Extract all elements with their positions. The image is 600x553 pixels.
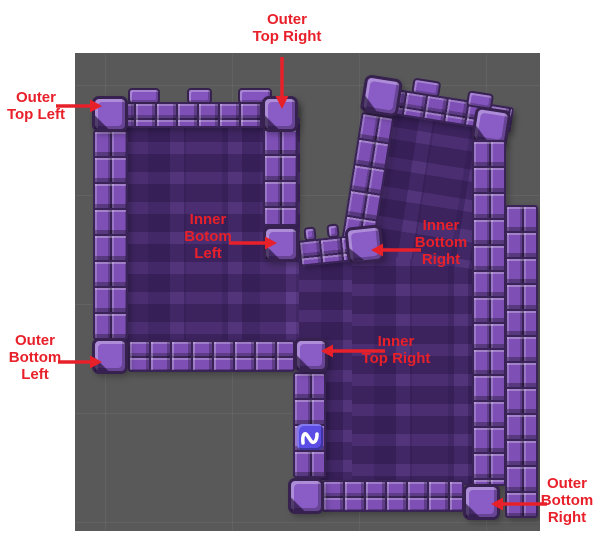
courtyard-left-wall xyxy=(263,128,298,226)
arrow-left-inner-bottom-right xyxy=(371,243,421,257)
corner-tile-right-body-bottom-left xyxy=(288,478,324,514)
annotated-screenshot: Outer Top Left Outer Top Right Inner Bot… xyxy=(0,0,600,553)
merlon xyxy=(128,88,160,104)
right-body-bottom-wall xyxy=(322,480,464,512)
arrow-right-outer-top-left xyxy=(56,99,102,113)
left-wall xyxy=(93,130,128,340)
arrow-left-inner-top-right xyxy=(321,344,385,358)
courtyard-merlon xyxy=(303,226,316,241)
arrow-left-outer-bottom-right xyxy=(491,497,547,511)
tower-top-left-corner-tile xyxy=(360,74,403,117)
arrow-right-outer-bottom-left xyxy=(58,355,102,369)
grid-line-h xyxy=(75,85,540,86)
merlon xyxy=(187,88,212,104)
courtyard-merlon xyxy=(326,223,339,238)
annotation-outer-top-right: Outer Top Right xyxy=(245,12,329,46)
right-wall-outer xyxy=(505,205,538,518)
arrow-down-outer-top-right xyxy=(275,57,289,109)
arrow-right-inner-bottom-left xyxy=(229,236,277,250)
wave-icon xyxy=(297,424,323,450)
sprite-tile xyxy=(297,424,323,450)
scene-view-canvas[interactable] xyxy=(75,53,540,531)
right-wall-inner xyxy=(472,140,506,486)
grid-line-h xyxy=(75,522,540,523)
left-body-bottom-wall xyxy=(128,340,295,372)
